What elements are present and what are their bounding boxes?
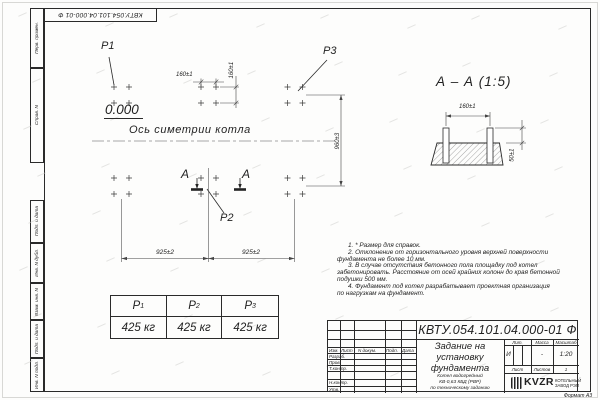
bolt-cross: [300, 100, 306, 106]
bolt-cross: [285, 100, 291, 106]
stamp-sheets-value: 1: [553, 367, 579, 372]
stamp-row-prov: Пров.: [329, 360, 341, 365]
elevation-mark: 0.000: [104, 103, 143, 119]
stamp-row-razrab: Разраб.: [329, 354, 345, 359]
stamp-scale-header: Масштаб: [553, 340, 579, 345]
stamp-mass-header: Масса: [531, 340, 553, 345]
bolt-cross: [111, 191, 117, 197]
bolt-cross: [213, 100, 219, 106]
load-table-value-p1: 425 кг: [111, 317, 167, 338]
drawing-sheet: КВТУ.054.101.04.000-01 Ф Перв. примен. С…: [0, 0, 600, 400]
bolt-cross: [198, 175, 204, 181]
section-letter-left: А: [181, 168, 189, 181]
bolt-cross: [111, 175, 117, 181]
section-cut-marks: [191, 178, 246, 190]
dim-160-v-text: 160±1: [229, 62, 235, 79]
bolt-cross: [126, 175, 132, 181]
stamp-scale-value: 1:20: [553, 351, 579, 358]
dim-925-left-text: 925±2: [156, 250, 174, 257]
load-label-p3: P3: [323, 46, 336, 58]
stamp-sheet-label: Лист: [504, 367, 531, 372]
load-table-value-p3: 425 кг: [222, 317, 278, 338]
load-table-header-p2: P2: [167, 296, 223, 317]
section-view-geometry: [431, 128, 503, 165]
section-dim-160: [446, 112, 490, 126]
dim-925-right-text: 925±2: [242, 250, 260, 257]
section-dim-50-text: 50±1: [510, 148, 516, 161]
anchor-bolt-left: [443, 128, 449, 163]
anchor-bolt-right: [487, 128, 493, 163]
bolt-cross: [285, 175, 291, 181]
bolt-cross: [300, 191, 306, 197]
stamp-col-ndokum: N докум.: [358, 348, 376, 353]
format-note: Формат А3: [508, 393, 600, 399]
dim-160-horizontal: [193, 79, 224, 87]
bolt-cross: [213, 175, 219, 181]
stamp-col-data: Дата: [402, 348, 414, 353]
bolt-cross: [111, 84, 117, 90]
stamp-sheets-label: Листов: [531, 367, 553, 372]
section-dim-160-text: 160±1: [459, 104, 476, 110]
bolt-cross: [300, 175, 306, 181]
axis-label: Ось симетрии котла: [129, 125, 251, 137]
stamp-col-izm: Изм.: [329, 348, 339, 353]
technical-notes: 1. * Размер для справок. 2. Отклонение о…: [337, 243, 583, 297]
stamp-lit-header: Лит.: [504, 340, 531, 345]
stamp-row-tkontr: Т.контр.: [329, 366, 347, 371]
stamp-col-list: Лист: [341, 348, 353, 353]
load-table-header-p3: P3: [222, 296, 278, 317]
bolt-cross: [285, 191, 291, 197]
bolt-cross: [126, 84, 132, 90]
stamp-designation: КВТУ.054.101.04.000-01 Ф: [416, 323, 579, 337]
load-table: P1 P2 P3 425 кг 425 кг 425 кг: [110, 295, 279, 339]
stamp-col-podp: Подп.: [386, 348, 398, 353]
company-name: КОТЕЛЬНЫЙ ЗАВОД РЭП: [555, 378, 581, 388]
kvzr-coil-icon: [511, 377, 522, 389]
load-label-p1: P1: [101, 41, 114, 53]
load-table-header-p1: P1: [111, 296, 167, 317]
bolt-cross: [126, 191, 132, 197]
stamp-row-nkontr: Н.контр.: [329, 380, 348, 385]
load-label-p2: P2: [220, 213, 233, 225]
load-table-value-p2: 425 кг: [167, 317, 223, 338]
section-letter-right: А: [242, 168, 250, 181]
dim-960-text: 960±3: [335, 133, 341, 150]
stamp-doc-title: Задание на установку фундамента: [417, 341, 503, 374]
section-title: А – А (1:5): [436, 75, 512, 89]
stamp-row-utv: Утв.: [329, 387, 339, 392]
bolt-cross: [300, 84, 306, 90]
note-line: по нагрузкам на фундамент.: [337, 291, 583, 298]
title-block: КВТУ.054.101.04.000-01 Ф Изм. Лист N док…: [327, 320, 578, 392]
dim-160-vertical: [220, 76, 239, 108]
kvzr-logo-text: KVZR: [524, 376, 554, 388]
stamp-product-name: Котел водогрейный КВ-0,63 КБД (РВР) по т…: [417, 374, 503, 392]
stamp-mass-value: -: [531, 351, 553, 358]
axis-lines: [92, 141, 335, 262]
bolt-cross: [198, 191, 204, 197]
bolt-cross: [285, 84, 291, 90]
dim-160-h-text: 160±1: [176, 72, 193, 78]
stamp-lit-value: И: [504, 351, 513, 358]
bolt-cross: [198, 100, 204, 106]
bolt-cross: [213, 191, 219, 197]
